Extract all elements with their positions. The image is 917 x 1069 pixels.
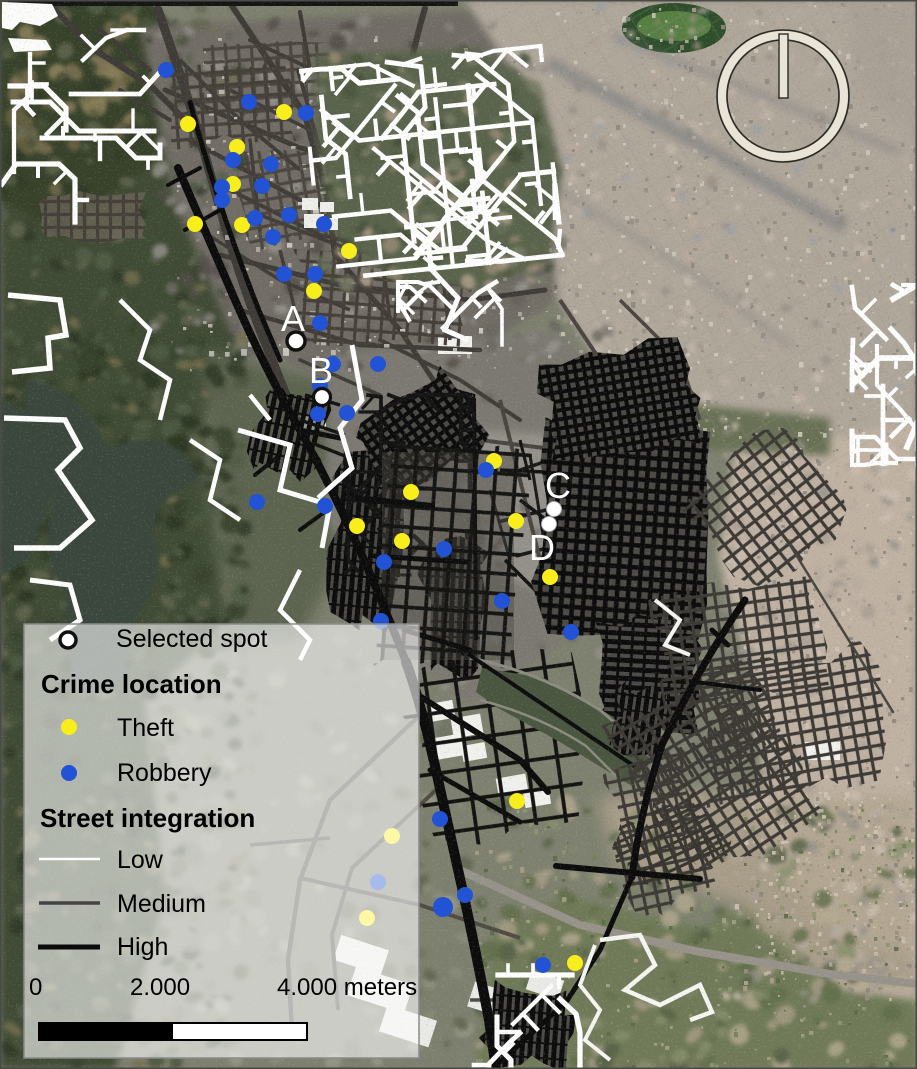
svg-text:2.000: 2.000 [130, 974, 190, 1001]
svg-text:C: C [545, 465, 571, 506]
svg-text:B: B [309, 350, 333, 391]
svg-text:Theft: Theft [117, 714, 174, 742]
svg-text:Low: Low [117, 846, 164, 874]
svg-text:0: 0 [29, 974, 42, 1001]
svg-text:A: A [281, 298, 305, 339]
svg-text:D: D [529, 527, 555, 568]
svg-text:High: High [117, 933, 168, 961]
svg-text:Street integration: Street integration [40, 803, 255, 833]
svg-text:Medium: Medium [117, 890, 206, 918]
svg-text:Selected spot: Selected spot [116, 625, 268, 653]
svg-text:Robbery: Robbery [117, 759, 212, 787]
svg-text:Crime location: Crime location [41, 669, 222, 699]
svg-text:4.000 meters: 4.000 meters [277, 974, 417, 1001]
